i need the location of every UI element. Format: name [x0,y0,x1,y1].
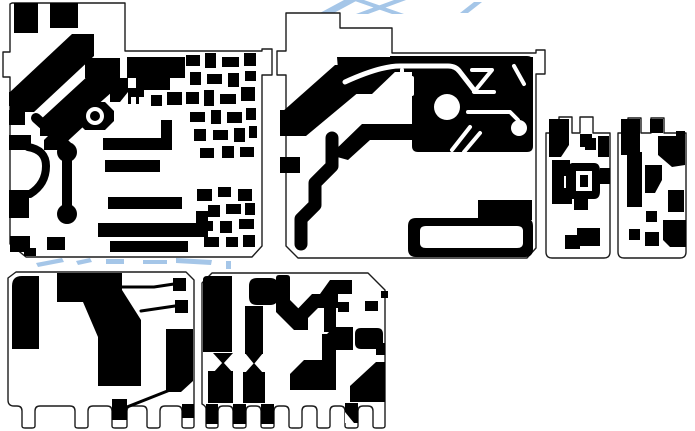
copper-shape [276,275,290,300]
copper-shape [151,95,162,106]
copper-shape [668,190,684,212]
board-top-left [3,3,272,257]
watermark-fragment [318,0,358,14]
copper-pad-core [90,111,100,121]
copper-shape [200,148,214,158]
copper-shape [98,223,208,237]
copper-shape [245,71,256,81]
watermark-fragment [226,261,231,269]
copper-shape [182,404,194,418]
copper-shape [646,211,657,222]
pcb-layout-screenshot [0,0,695,431]
copper-shape [208,205,220,217]
copper-shape [261,404,274,424]
copper-shape [9,110,25,125]
copper-shape [197,189,212,201]
copper-shape [233,404,246,424]
copper-shape [365,301,378,311]
copper-shape [226,237,238,247]
copper-shape [213,130,228,140]
copper-shape [585,138,596,150]
copper-shape [194,129,206,141]
copper-shape [167,92,182,105]
copper-shape [245,306,263,354]
copper-shape [249,126,257,138]
board-bottom-left [8,272,194,428]
board-small-left [546,117,610,258]
copper-shape [376,343,385,355]
copper-shape [243,372,265,403]
copper-shape [240,147,254,157]
copper-shape [228,73,239,87]
watermark-fragment [176,258,212,265]
copper-shape [663,220,686,247]
copper-shape [211,110,221,124]
board-bottom-middle [202,273,388,428]
copper-shape [645,232,659,246]
watermark-fragment [460,2,482,13]
board-small-right [618,118,686,258]
copper-shape [220,94,236,104]
copper-shape [206,404,218,424]
copper-shape [166,329,193,392]
copper-shape [108,197,182,209]
copper-shape [629,229,640,240]
copper-shape [243,235,255,247]
copper-shape [234,128,245,142]
copper-pad-core [580,175,588,187]
copper-shape [161,120,172,140]
copper-shape [627,152,642,207]
copper-shape [478,200,532,220]
copper-shape [241,87,255,101]
copper-shape [280,157,300,173]
copper-shape [175,300,188,313]
copper-shape [186,55,200,66]
copper-shape [621,119,640,155]
copper-shape [338,302,349,312]
copper-shape [47,237,65,250]
copper-shape [676,131,685,137]
copper-shape [598,136,609,157]
watermark-fragment [143,260,167,264]
copper-shape [222,57,239,67]
watermark-fragment [76,258,92,265]
copper-shape [110,241,188,252]
copper-shape [208,371,233,403]
copper-shape [24,248,36,256]
copper-shape [204,90,214,106]
copper-shape [204,237,219,247]
copper-shape [226,204,241,214]
copper-shape [190,72,201,85]
copper-shape [600,168,610,184]
pcb-panel-artwork [0,0,695,431]
copper-shape [244,53,256,66]
copper-shape [190,112,205,122]
copper-shape [9,92,32,106]
copper-shape [381,291,388,298]
copper-shape [105,160,160,172]
copper-shape [57,204,77,224]
copper-shape [9,190,29,218]
copper-shape [239,219,254,229]
copper-shape [220,221,232,233]
copper-shape [186,92,199,104]
routing-clearance [434,94,460,120]
copper-shape [14,3,38,33]
copper-shape [50,3,78,28]
copper-shape [650,119,663,133]
watermark-fragment [36,258,64,267]
copper-shape [199,221,213,231]
routing-clearance [420,226,523,248]
copper-shape [12,276,39,349]
copper-shape [238,189,252,201]
copper-shape [218,187,231,197]
copper-shape [249,278,278,305]
copper-shape [207,74,222,84]
copper-shape [245,203,255,215]
copper-shape [246,108,256,120]
copper-shape [574,198,588,210]
copper-shape [203,276,232,352]
copper-shape [280,110,306,136]
copper-shape [227,112,242,123]
copper-shape [205,53,216,68]
watermark-fragment [106,259,124,264]
copper-shape [222,146,234,158]
board-top-middle [277,13,545,258]
